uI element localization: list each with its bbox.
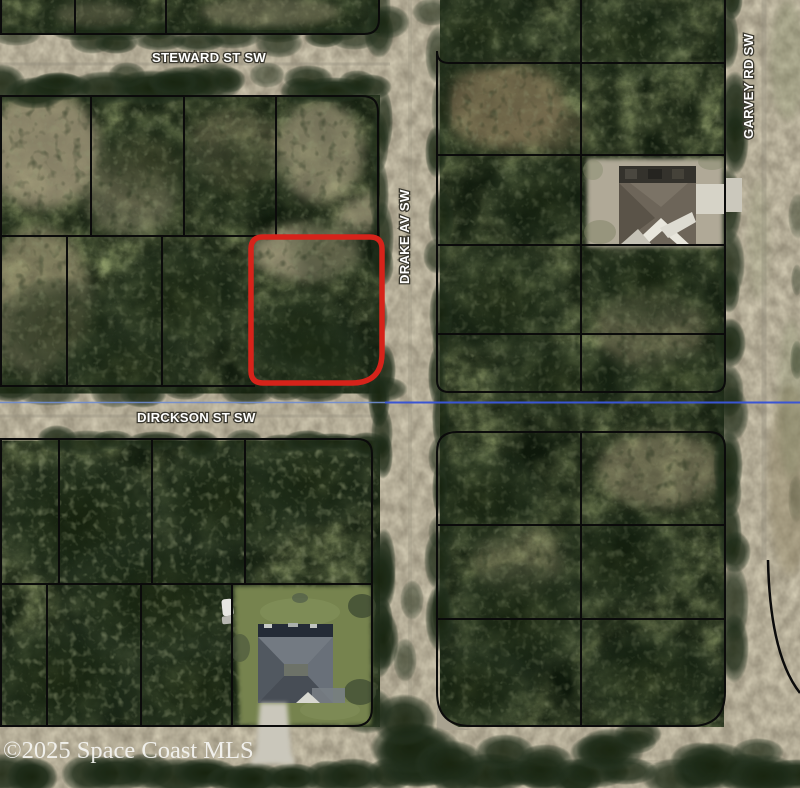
svg-text:©2025 Space Coast MLS: ©2025 Space Coast MLS [3,737,254,764]
svg-text:GARVEY RD SW: GARVEY RD SW [741,33,756,139]
svg-text:DRAKE AV SW: DRAKE AV SW [397,189,412,284]
svg-text:DIRCKSON ST SW: DIRCKSON ST SW [137,410,256,425]
svg-text:STEWARD ST SW: STEWARD ST SW [152,50,266,65]
